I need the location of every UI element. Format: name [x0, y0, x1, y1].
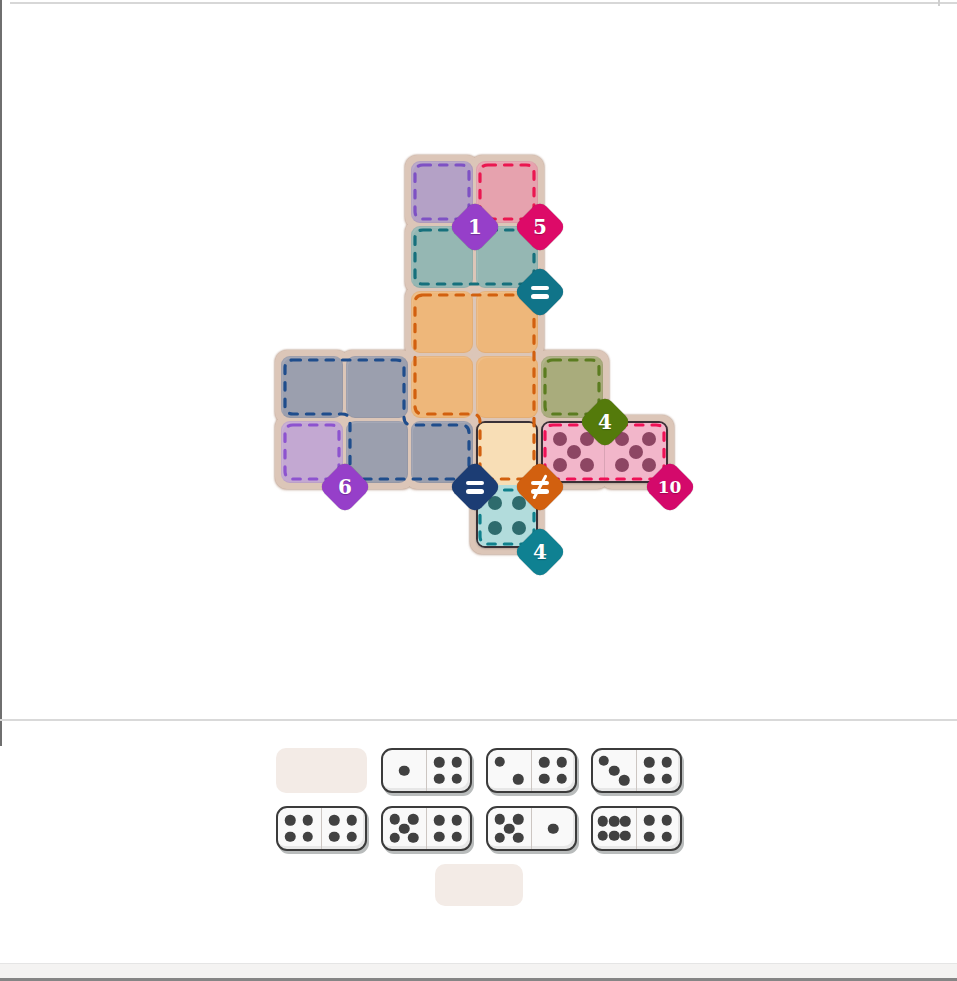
pip [302, 815, 313, 826]
pip [548, 823, 559, 834]
not-equals-icon [529, 476, 551, 498]
puzzle-page: 1564104 [0, 0, 957, 981]
pip [567, 445, 581, 459]
bottom-status-strip [0, 963, 957, 979]
pip [644, 757, 655, 768]
pip [553, 458, 567, 472]
tray-domino-1-4[interactable] [381, 748, 472, 793]
glyph-bar [531, 294, 549, 299]
pip [504, 823, 515, 834]
pip [644, 815, 655, 826]
puzzle-board: 1564104 [0, 0, 957, 721]
pip [619, 775, 630, 786]
tray-domino-5-4[interactable] [381, 806, 472, 851]
pip [644, 773, 655, 784]
equals-icon [464, 476, 486, 498]
tray-row [276, 806, 682, 851]
pip [285, 831, 296, 842]
pip [513, 814, 524, 825]
glyph-slash [532, 474, 547, 499]
pip [434, 815, 445, 826]
pip [642, 458, 656, 472]
tray-domino-5-1[interactable] [486, 806, 577, 851]
tray-half-4 [636, 750, 680, 791]
pip [451, 773, 462, 784]
pip [539, 773, 550, 784]
pip [598, 816, 609, 827]
pip [644, 831, 655, 842]
pip [408, 814, 419, 825]
tray-half-3 [593, 750, 636, 791]
tray-domino-4-4[interactable] [276, 806, 367, 851]
tray-slot[interactable] [276, 748, 367, 793]
cell-orange-pentomino-r3c3[interactable] [476, 356, 538, 418]
pip [642, 432, 656, 446]
tray-half-1 [383, 750, 426, 791]
pip [488, 521, 502, 535]
tray-half-6 [593, 808, 636, 849]
badge-label: 10 [658, 478, 682, 495]
pip [451, 815, 462, 826]
pip [609, 831, 620, 842]
cell-orange-pentomino-r2c2[interactable] [411, 291, 473, 353]
pip [512, 521, 526, 535]
pip [302, 831, 313, 842]
equals-icon [529, 281, 551, 303]
pip [598, 755, 609, 766]
pip [629, 445, 643, 459]
pip [329, 831, 340, 842]
cell-navy-tetromino-r3c0[interactable] [281, 356, 343, 418]
pip [434, 831, 445, 842]
tray-half-4 [321, 808, 365, 849]
badge-label: 1 [468, 217, 482, 237]
tray-slot[interactable] [435, 864, 523, 906]
pip [451, 831, 462, 842]
badge-label: 4 [598, 412, 612, 432]
pip [661, 773, 672, 784]
tray-domino-6-4[interactable] [591, 806, 682, 851]
pip [580, 458, 594, 472]
tray-half-4 [278, 808, 321, 849]
badge-label: 5 [533, 217, 547, 237]
pip [495, 757, 506, 768]
tray-half-4 [426, 750, 470, 791]
pip [434, 757, 445, 768]
pip [598, 831, 609, 842]
pip [346, 831, 357, 842]
tray-domino-3-4[interactable] [591, 748, 682, 793]
pip [389, 814, 400, 825]
tray-half-5 [488, 808, 531, 849]
glyph-bar [531, 286, 549, 291]
pip [620, 831, 631, 842]
pip [399, 765, 410, 776]
cell-navy-tetromino-r3c1[interactable] [346, 356, 408, 418]
pip [513, 774, 524, 785]
tray-half-2 [488, 750, 531, 791]
pip [346, 815, 357, 826]
pip [434, 773, 445, 784]
pip [609, 816, 620, 827]
pip [661, 831, 672, 842]
tray-half-4 [636, 808, 680, 849]
badge-label: 6 [338, 477, 352, 497]
pip [661, 757, 672, 768]
pip [615, 458, 629, 472]
badge-label: 4 [533, 542, 547, 562]
pip [556, 773, 567, 784]
tray-half-1 [531, 808, 575, 849]
tray-row [276, 748, 682, 793]
pip [620, 816, 631, 827]
domino-tray [0, 721, 957, 963]
glyph-bar [466, 481, 484, 486]
pip [556, 757, 567, 768]
tray-row [435, 864, 523, 906]
tray-half-5 [383, 808, 426, 849]
pip [539, 757, 550, 768]
pip [285, 815, 296, 826]
tray-half-4 [426, 808, 470, 849]
pip [553, 432, 567, 446]
pip [329, 815, 340, 826]
pip [661, 815, 672, 826]
pip [399, 823, 410, 834]
pip [494, 814, 505, 825]
tray-domino-2-4[interactable] [486, 748, 577, 793]
glyph-bar [466, 489, 484, 494]
pip [451, 757, 462, 768]
pip [408, 832, 419, 843]
pip [609, 765, 620, 776]
cell-orange-pentomino-r3c2[interactable] [411, 356, 473, 418]
pip [494, 832, 505, 843]
tray-half-4 [531, 750, 575, 791]
pip [513, 832, 524, 843]
pip [389, 832, 400, 843]
